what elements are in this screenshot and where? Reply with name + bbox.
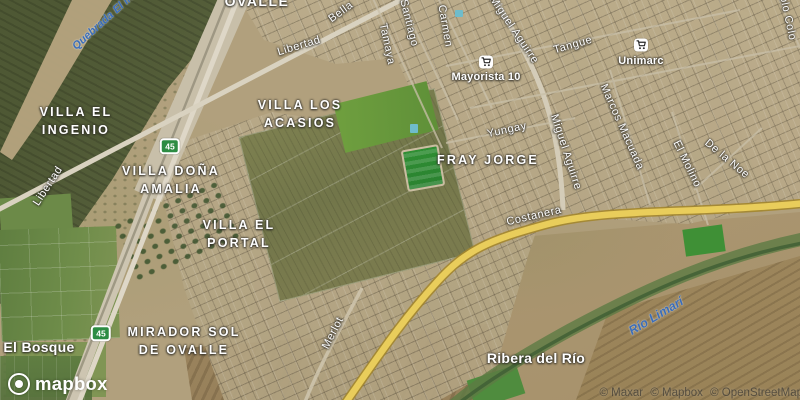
neighborhood-label-villa-dona-amalia: VILLA DOÑA AMALIA [122, 162, 220, 198]
attribution-mapbox-link[interactable]: © Mapbox [650, 387, 703, 399]
neighborhood-line: FRAY JORGE [437, 151, 539, 169]
neighborhood-line: MIRADOR SOL [127, 323, 240, 341]
neighborhood-line: ACASIOS [258, 114, 343, 132]
attribution-openstreetmap-link[interactable]: © OpenStreetMap [710, 387, 800, 399]
mapbox-logo[interactable]: mapbox [8, 373, 108, 395]
shopping-cart-icon [479, 56, 493, 69]
neighborhood-line: VILLA LOS [258, 96, 343, 114]
neighborhood-line: PORTAL [203, 234, 276, 252]
swimming-pool [410, 124, 418, 133]
neighborhood-line: VILLA EL [203, 216, 276, 234]
locality-label-el-bosque: El Bosque [3, 339, 74, 355]
poi-label-mayorista-10: Mayorista 10 [451, 71, 520, 83]
route-45-shield: 45 [91, 325, 111, 341]
mapbox-logo-icon [8, 373, 30, 395]
neighborhood-label-fray-jorge: FRAY JORGE [437, 151, 539, 169]
mapbox-wordmark: mapbox [35, 373, 108, 395]
attribution-maxar-link[interactable]: © Maxar [600, 387, 644, 399]
neighborhood-line: VILLA DOÑA [122, 162, 220, 180]
swimming-pool [455, 10, 463, 17]
locality-label-ribera-del-rio: Ribera del Río [487, 350, 585, 366]
town-label-ovalle: OVALLE [225, 0, 290, 9]
neighborhood-label-villa-el-ingenio: VILLA EL INGENIO [40, 103, 113, 139]
neighborhood-label-villa-el-portal: VILLA EL PORTAL [203, 216, 276, 252]
neighborhood-label-mirador-sol-de-ovalle: MIRADOR SOL DE OVALLE [127, 323, 240, 359]
map-attribution: © Maxar © Mapbox © OpenStreetMap [596, 387, 800, 399]
neighborhood-line: VILLA EL [40, 103, 113, 121]
poi-label-unimarc: Unimarc [618, 55, 663, 67]
field-riverside-north [682, 224, 725, 256]
neighborhood-line: AMALIA [122, 180, 220, 198]
satellite-map-canvas[interactable]: Quebrada El In Río Limarí Libertad Liber… [0, 0, 800, 400]
shopping-cart-icon [634, 39, 648, 52]
route-45-shield: 45 [160, 138, 180, 154]
neighborhood-line: INGENIO [40, 121, 113, 139]
neighborhood-line: DE OVALLE [127, 341, 240, 359]
neighborhood-label-villa-los-acasios: VILLA LOS ACASIOS [258, 96, 343, 132]
